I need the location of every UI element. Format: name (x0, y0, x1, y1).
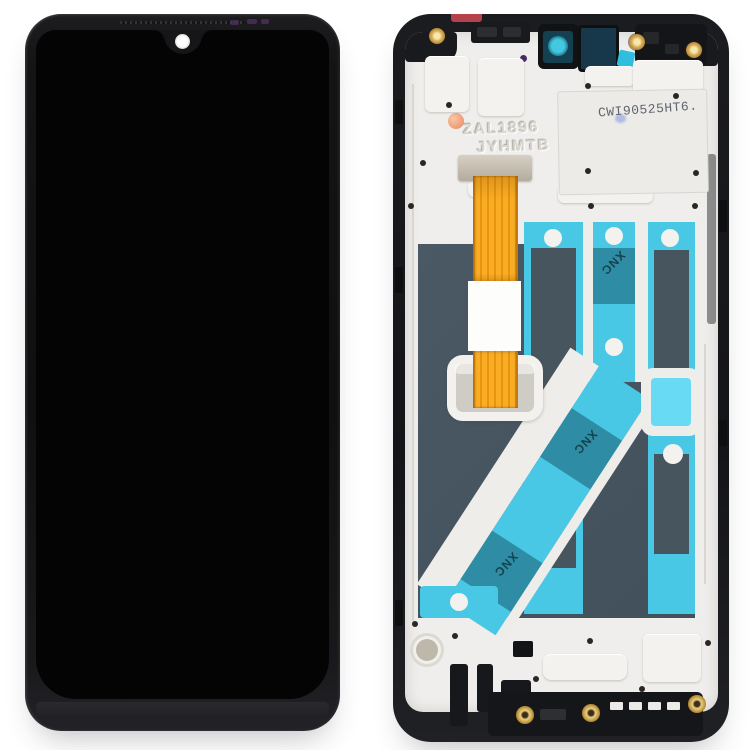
tape-hole (661, 229, 679, 247)
side-clip (719, 420, 727, 446)
screw-dot (587, 638, 593, 644)
plate-dash (667, 702, 680, 710)
tape-hole (450, 593, 468, 611)
front-camera-hole (175, 34, 190, 49)
screw-dot (705, 640, 711, 646)
tape-hole (605, 227, 623, 245)
gold-screw (429, 28, 445, 44)
adhesive-dot-orange (448, 113, 464, 129)
side-clip (395, 600, 403, 626)
screw-dot (693, 170, 699, 176)
screw-dot (692, 203, 698, 209)
tape-hole (605, 338, 623, 356)
screw-dot (420, 160, 426, 166)
plate-dash (629, 702, 642, 710)
adhesive-strip-middle: XNC (593, 222, 635, 382)
stamped-code-line2: JYHMTB (477, 137, 551, 157)
embossed-pad (543, 654, 627, 680)
screw-dot (533, 676, 539, 682)
reflection-smudge (247, 19, 257, 24)
blue-ink-smudge (615, 114, 626, 123)
top-slot-group (471, 22, 530, 43)
reflection-smudge (230, 20, 239, 25)
bottom-chin (36, 702, 329, 724)
tape-window (654, 454, 689, 554)
display-screen (36, 30, 329, 699)
gold-screw (629, 34, 645, 50)
screw-dot (585, 168, 591, 174)
gold-eyelet (688, 695, 706, 713)
screw-dot (588, 203, 594, 209)
gold-screw (686, 42, 702, 58)
bottom-black-chip (513, 641, 533, 657)
terminal-tape-cap (420, 586, 498, 618)
flex-cable-sticker (468, 281, 521, 351)
screw-dot (412, 621, 418, 627)
screw-dot (452, 633, 458, 639)
bottom-plate-circle-inner (416, 639, 438, 661)
charge-port-slot (540, 709, 566, 720)
red-qc-sticker (451, 14, 482, 22)
screw-dot (585, 83, 591, 89)
earpiece-mesh (120, 21, 245, 24)
plate-dash (648, 702, 661, 710)
embossed-pad (585, 66, 635, 86)
side-clip (395, 267, 403, 293)
camera-lens-hole (548, 36, 568, 56)
product-photo: ZAL1896 JYHMTB CWI90525HT6. XNC (0, 0, 750, 750)
plate-band (635, 222, 648, 382)
side-rail-left (412, 84, 414, 624)
screw-dot (639, 686, 645, 692)
lcd-assembly-back: ZAL1896 JYHMTB CWI90525HT6. XNC (393, 14, 729, 742)
screw-dot (446, 102, 452, 108)
stamped-code-line1: ZAL1896 (463, 119, 540, 139)
tape-window (654, 250, 689, 376)
bright-tape-square (651, 378, 691, 426)
side-clip (395, 100, 403, 124)
side-clip (719, 200, 727, 232)
tape-hole (544, 229, 562, 247)
screw-dot (673, 93, 679, 99)
embossed-pad (478, 58, 524, 116)
plate-dash (610, 702, 623, 710)
tape-hole (663, 444, 683, 464)
side-rail-right (704, 344, 706, 584)
embossed-pad (643, 634, 701, 682)
front-camera-housing (538, 24, 579, 69)
gold-eyelet (582, 704, 600, 722)
bottom-black-bar (488, 692, 703, 736)
screw-dot (408, 203, 414, 209)
bottom-slot (450, 664, 468, 726)
sensor-window (578, 25, 619, 72)
tape-square-outline (641, 368, 701, 436)
gold-eyelet (516, 706, 534, 724)
reflection-smudge (261, 19, 269, 24)
lcd-assembly-front (25, 14, 340, 731)
